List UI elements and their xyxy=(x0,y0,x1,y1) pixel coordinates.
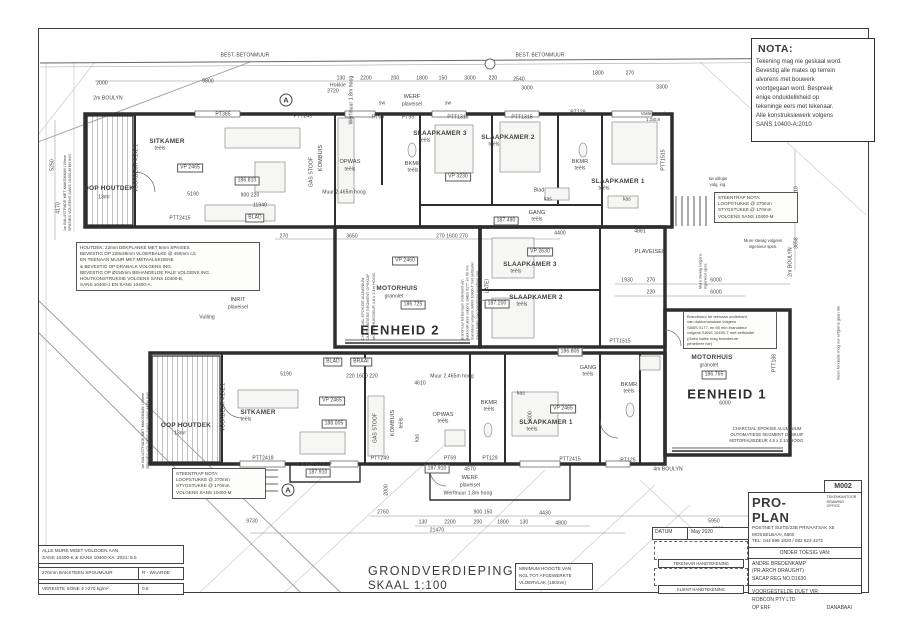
balustrade-note-bottom: 1m BALUSTRADE MET MAKSIMUM 100mmSPASIES … xyxy=(141,351,151,469)
erfgrens-note: Geen fondasie mag oor erfgrens gaan nie xyxy=(835,290,840,380)
plan-label: PTT249 xyxy=(294,115,312,120)
plan-label: 9800 xyxy=(202,80,214,85)
plan-label: teëls xyxy=(483,408,494,413)
plan-label: 2m BOULYN xyxy=(789,247,794,276)
plan-label: 4m BOULYN xyxy=(653,468,682,473)
plan-label: 187.200 xyxy=(485,300,510,309)
plan-label: 4570 xyxy=(464,468,476,473)
plan-label: VP 2465 xyxy=(319,397,345,406)
plan-label: BEST. BETONMUUR xyxy=(516,54,565,59)
plan-label: 270 xyxy=(647,279,656,284)
plan-label: kas xyxy=(517,392,525,397)
plan-label: PT129 xyxy=(570,111,585,116)
drawing-title-block: GRONDVERDIEPING SKAAL 1:100 xyxy=(368,564,514,592)
plan-label: 3650 xyxy=(346,235,358,240)
project-section: VOORGESTELDE DUET VIR ROBCON PTY LTD OP … xyxy=(749,586,861,614)
plan-label: SITKAMER xyxy=(240,410,275,416)
plan-label: 186.725 xyxy=(401,301,426,310)
plan-label: VP 2460 xyxy=(392,257,418,266)
steentrap-note-right: STEENTRAP NOTA:LOOPSTUKKE @ 270mmSTYGSTU… xyxy=(714,192,798,223)
plan-label: GAS STOOF xyxy=(374,413,379,443)
plan-label: sw xyxy=(445,102,451,107)
plan-label: 13m² xyxy=(98,196,110,201)
balustrade-note-top: 1m BALUSTRADE MET MAKSIMUM 100mmSPASIES … xyxy=(63,113,73,231)
plan-label: 4881 xyxy=(634,230,646,235)
plan-label: MOTORHUIS xyxy=(691,355,732,361)
plan-label: 4800 xyxy=(555,522,567,527)
plan-label: 186.805 xyxy=(558,348,583,357)
supervision-label: ONDER TOESIG VAN: xyxy=(749,548,861,559)
plan-label: SLAAPKAMER 1 xyxy=(591,179,644,185)
datum-label: DATUM xyxy=(653,528,688,539)
plan-label: kas xyxy=(623,198,631,203)
plan-label: VOORDEUR 4.2x2.1 xyxy=(222,383,227,431)
plan-label: PTT2415 xyxy=(559,458,580,463)
plan-label: SLAAPKAMER 2 xyxy=(509,295,562,301)
plan-label: SLAAPKAMER 2 xyxy=(481,135,534,141)
nota-text: Tekening mag nie geskaal word. Bevestig … xyxy=(756,58,870,130)
title-block: PRO-PLAN TEKENKANTOOR DRAWING OFFICE POS… xyxy=(748,492,862,594)
plan-label: GAS STOOF xyxy=(310,157,315,187)
firm-sub2: DRAWING OFFICE xyxy=(827,500,844,509)
zone-cell: VEREISTE SONE 4 >270 kg/m² xyxy=(39,584,139,595)
plan-label: plaveisel xyxy=(228,306,248,311)
plan-label: 5950 xyxy=(708,520,720,525)
plan-label: teëls xyxy=(400,417,405,428)
plan-label: 130 xyxy=(419,521,428,526)
firm-subtitle: TEKENKANTOOR DRAWING OFFICE xyxy=(827,495,858,509)
plan-label: PT129 xyxy=(482,457,497,462)
plan-label: 5190 xyxy=(280,373,292,378)
plan-label: SLAAPKAMER 3 xyxy=(503,262,556,268)
plan-label: KOMBUIS xyxy=(319,145,325,172)
brandmuur-note-unit2: Brandmuur tot teenaan onderkant vandakko… xyxy=(460,236,479,340)
plan-label: PT365 xyxy=(215,113,230,118)
plan-label: Werfmuur 1.8m hoog xyxy=(444,492,493,497)
plan-label: VOORDEUR 4.2x2.1 xyxy=(135,144,140,192)
r-value-header-cell: R - WAARDE xyxy=(139,568,183,579)
supervisor-qualification: (PR.ARCH DRAUGHT) xyxy=(752,568,858,576)
plan-label: teëls xyxy=(510,270,521,275)
plan-label: PTT249 xyxy=(371,457,389,462)
plan-label: SITKAMER xyxy=(149,139,184,145)
plan-label: 4430 xyxy=(539,512,551,517)
drawing-scale: SKAAL 1:100 xyxy=(368,580,514,592)
plan-label: teëls xyxy=(526,428,537,433)
plan-label: Muur 2.465m hoog xyxy=(322,191,366,196)
plan-label: teëls xyxy=(531,218,542,223)
plan-label: 4170 xyxy=(57,202,62,214)
plan-label: teëls xyxy=(407,169,418,174)
plan-label: 6000 xyxy=(710,279,722,284)
plan-label: 1800 xyxy=(497,521,509,526)
plan-label: kas xyxy=(544,198,552,203)
plan-label: PTT1315 xyxy=(511,116,532,121)
plan-label: 187.910 xyxy=(425,465,450,474)
firm-address2: MOSSELBAAI, 6500 xyxy=(752,532,858,539)
vaste-paneel-note: Vaste paneel1.2x0.8 xyxy=(633,111,673,122)
plan-label: 3658 xyxy=(795,237,800,249)
plan-label: 6000 xyxy=(719,402,731,407)
plan-label: VP 2465 xyxy=(177,164,203,173)
plan-label: VP 2465 xyxy=(550,405,576,414)
sw-uitlope-note: sw uitlopevolg. ing. xyxy=(699,176,737,187)
plan-label: Vulling xyxy=(199,316,215,321)
plan-label: 220 1600 220 xyxy=(346,375,378,380)
charcoal-note-unit1: CHARCOAL EPOKSIE ALUMINIUMOUTOMATIESE SE… xyxy=(707,426,827,443)
plan-label: OPWAS xyxy=(339,160,360,166)
mure-stewig-note-vert: Mure stewig volgensingenieur spes. xyxy=(698,237,709,289)
plan-label: teëls xyxy=(344,168,355,173)
plan-label: BRAAI xyxy=(350,358,372,367)
plan-label: 2200 xyxy=(360,77,372,82)
plan-label: 9730 xyxy=(246,520,258,525)
plan-label: 2540 xyxy=(513,78,525,83)
plan-label: 186.810 xyxy=(235,177,260,186)
firm-name: PRO-PLAN xyxy=(752,495,824,525)
plan-label: Muur 2.465m hoog xyxy=(430,375,474,380)
plan-label: 187.910 xyxy=(306,469,331,478)
plan-label: teëls xyxy=(582,373,593,378)
plan-label: WERF xyxy=(404,95,421,101)
plan-label: LATEI xyxy=(486,279,491,293)
plan-label: 270 xyxy=(280,235,289,240)
supervisor-registration: SACAP REG NO D1630 xyxy=(752,576,858,584)
plan-label: teëls xyxy=(574,167,585,172)
plan-label: 11940 xyxy=(253,204,267,209)
klient-signature-box xyxy=(654,568,748,586)
wall-table-row: VEREISTE SONE 4 >270 kg/m² 0.6 xyxy=(38,583,184,596)
plan-label: 2000 xyxy=(385,484,390,496)
plan-label: teëls xyxy=(516,303,527,308)
plan-label: Werfmuur 1.8m hoog xyxy=(350,76,355,125)
plan-label: 6000 xyxy=(710,291,722,296)
nota-box: NOTA: Tekening mag nie geskaal word. Bev… xyxy=(751,38,875,142)
firm-sub1: TEKENKANTOOR xyxy=(827,495,857,499)
plan-label: 4610 xyxy=(414,382,426,387)
plan-label: 220 xyxy=(647,291,656,296)
plan-label: VP 3230 xyxy=(445,173,471,182)
plan-label: MOTORHUIS xyxy=(376,286,417,292)
plan-label: 188.005 xyxy=(322,420,347,429)
brandmuur-note-unit1: Brandmuur tot teenaan onderkantvan dakko… xyxy=(683,311,777,349)
plan-label: 900 150 xyxy=(474,511,493,516)
plan-label: PT69 xyxy=(372,116,384,121)
plan-label: PTT1515 xyxy=(662,149,667,170)
plan-label: teëls xyxy=(419,139,430,144)
plan-label: INRIT xyxy=(230,298,245,304)
tekenaar-signature-label: TEKENAAR HANDTEKENING xyxy=(658,559,744,568)
r-value-cell: 0.6 xyxy=(139,584,183,595)
plan-label: kas xyxy=(416,434,421,442)
plan-label: PTT2418 xyxy=(252,457,273,462)
plan-label: sw xyxy=(379,102,385,107)
plan-label: BLAD xyxy=(245,214,264,223)
plan-label: teëls xyxy=(437,420,448,425)
plan-label: plaveisel xyxy=(402,103,422,108)
project-line2: ROBCON PTY LTD xyxy=(752,596,858,604)
plan-label: 5190 xyxy=(187,193,199,198)
plan-label: 4400 xyxy=(554,232,566,237)
datum-value: May 2020 xyxy=(688,528,749,539)
plan-label: teëls xyxy=(488,143,499,148)
firm-address1: POSTNET SUITE/23B PRIVAATSAK X5 xyxy=(752,525,858,532)
plan-label: 3300 xyxy=(656,86,668,91)
tekenaar-signature-box xyxy=(654,541,748,560)
plan-label: OOP HOUTDEK xyxy=(161,423,211,429)
plan-label: 3720 xyxy=(327,90,339,95)
plan-label: PTT2415 xyxy=(169,217,190,222)
plan-label: BLAD xyxy=(323,358,342,367)
drawing-title: GRONDVERDIEPING xyxy=(368,564,514,578)
plan-label: 150 xyxy=(439,77,448,82)
plan-label: Hokkie xyxy=(330,84,346,89)
plan-label: 2200 xyxy=(444,521,456,526)
plan-label: PT99 xyxy=(402,116,414,121)
plan-label: teëls xyxy=(240,418,251,423)
plan-label: granolet xyxy=(385,295,404,300)
plan-label: 5250 xyxy=(51,159,56,171)
wall-table-row: 270mm BAKSTEEN SPOUMUUR R - WAARDE xyxy=(38,567,184,580)
plan-label: 187.490 xyxy=(494,217,519,226)
plan-label: 900 220 xyxy=(241,194,260,199)
plan-label: 130 xyxy=(520,521,529,526)
plan-label: PT125 xyxy=(620,459,635,464)
plan-label: teëls xyxy=(154,147,165,152)
plan-label: 21470 xyxy=(430,529,444,534)
klient-signature-label: KLIENT HANDTEKENING xyxy=(658,585,744,594)
project-line1: VOORGESTELDE DUET VIR xyxy=(752,588,858,596)
plan-label: PT69 xyxy=(444,457,456,462)
datum-strip: DATUM May 2020 xyxy=(652,527,750,540)
plan-label: 3600 xyxy=(529,411,534,423)
plan-label: PTT1515 xyxy=(609,340,630,345)
wall-table-header: ALLE MURE MOET VOLDOEN AAN SANS 10400-K … xyxy=(38,545,184,564)
plan-label: 200 xyxy=(391,77,400,82)
plan-label: PTT188 xyxy=(773,354,778,372)
plan-label: 1800 xyxy=(592,72,604,77)
plan-label: PLAVEISEL xyxy=(635,250,666,256)
plan-label: teëls xyxy=(623,390,634,395)
supervisor-section: ANDRE BREDENKAMP (PR.ARCH DRAUGHT) SACAP… xyxy=(749,559,861,587)
plan-label: 1930 xyxy=(621,279,633,284)
charcoal-note-unit2: CHARCOAL EPOKSIE ALUMINIUMOUTOMATIESE SE… xyxy=(360,240,376,340)
plan-label: granolet xyxy=(700,364,719,369)
plan-label: 3000 xyxy=(521,87,533,92)
project-town: DANABAAI xyxy=(827,604,852,612)
houtdek-note: HOUTDEK: 22mm DEKPLANKE MET 5mm SPASIESB… xyxy=(76,242,260,291)
plan-label: A xyxy=(282,484,295,497)
wall-table: ALLE MURE MOET VOLDOEN AAN SANS 10400-K … xyxy=(38,545,184,598)
plan-label: 2m BOULYN xyxy=(93,97,122,102)
plan-label: teëls xyxy=(598,187,609,192)
steentrap-note-left: STEENTRAP NOTA:LOOPSTUKKE @ 270mmSTYGSTU… xyxy=(172,468,266,499)
plan-label: 1800 xyxy=(416,77,428,82)
project-erf-label: OP ERF xyxy=(752,604,771,612)
plan-label: SLAAPKAMER 3 xyxy=(413,131,466,137)
plan-label: 2760 xyxy=(377,511,389,516)
plan-label: 2000 xyxy=(96,82,108,87)
plan-label: OOP HOUTDEK xyxy=(84,186,134,192)
plan-label: A xyxy=(280,94,293,107)
plan-label: VP 2630 xyxy=(527,248,553,257)
plan-label: 270 xyxy=(626,72,635,77)
plan-label: Blad xyxy=(534,189,544,194)
plan-label: KOMBUIS xyxy=(391,410,397,437)
plan-label: WERF xyxy=(462,476,479,482)
plan-label: 220 xyxy=(489,77,498,82)
firm-section: PRO-PLAN TEKENKANTOOR DRAWING OFFICE POS… xyxy=(749,493,861,548)
plan-label: BEST. BETONMUUR xyxy=(221,54,270,59)
firm-tel: TEL: 044 696 1820 / 082 823 4272 xyxy=(752,538,858,545)
mure-stewig-note: Mure stewig volgensingenieur spes. xyxy=(733,238,793,249)
nota-title: NOTA: xyxy=(758,43,870,55)
plan-label: 130 xyxy=(337,77,346,82)
wall-type-cell: 270mm BAKSTEEN SPOUMUUR xyxy=(39,568,139,579)
plan-label: 13m² xyxy=(174,432,186,437)
plan-label: PTT1315 xyxy=(447,116,468,121)
plan-label: EENHEID 1 xyxy=(687,388,766,401)
plan-label: 186.765 xyxy=(702,371,727,380)
scanned-floor-plan-sheet: BEST. BETONMUURBEST. BETONMUUR2000980037… xyxy=(0,0,900,626)
supervisor-name: ANDRE BREDENKAMP xyxy=(752,561,858,569)
plan-label: 3000 xyxy=(464,77,476,82)
plan-label: plaveisel xyxy=(460,484,480,489)
min-hoogte-note: MINIMUM HOOGTE VAN NGL TOT AFGEWERKTE VL… xyxy=(515,563,593,590)
plan-label: 200 xyxy=(474,521,483,526)
